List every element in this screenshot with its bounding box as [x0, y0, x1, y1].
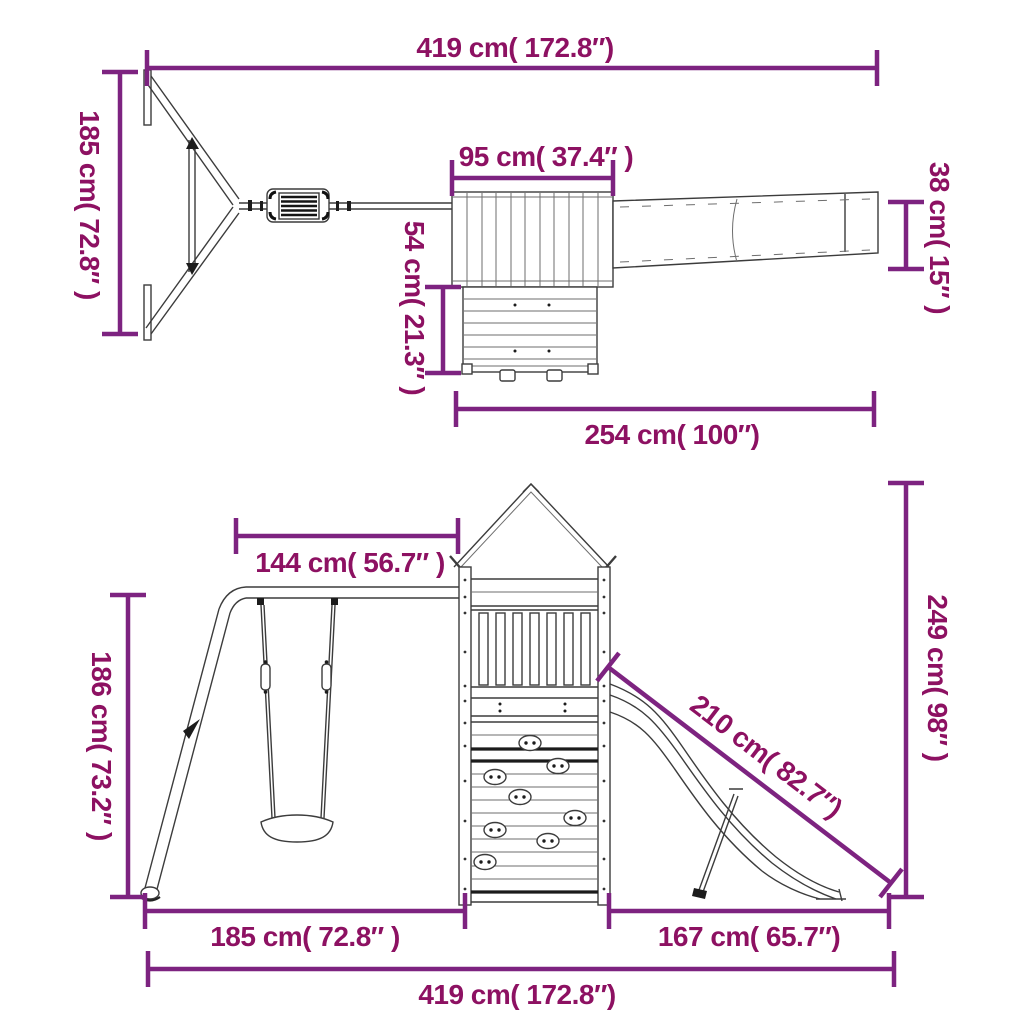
dim-side-slide-span: 167 cm( 65.7″): [609, 893, 889, 952]
dim-side-slide-length-label: 210 cm( 82.7″): [684, 689, 848, 824]
dim-side-total-width: 419 cm( 172.8″): [148, 951, 894, 1010]
dim-top-slide-width: 38 cm( 15″ ): [888, 162, 955, 314]
dim-side-tower-height-label: 249 cm( 98″ ): [922, 594, 953, 761]
slide-top-view: [613, 192, 878, 268]
tower-side-view: [450, 484, 616, 905]
swing-seat-top-view: [267, 189, 329, 222]
playset-dimensions-diagram: 419 cm( 172.8″) 185 cm( 72.8″ ) 95 cm( 3…: [0, 0, 1024, 1024]
playhouse-roof-top-view: [452, 192, 613, 287]
dim-side-swing-span: 185 cm( 72.8″ ): [145, 893, 465, 952]
dim-side-tower-height: 249 cm( 98″ ): [888, 483, 953, 897]
swing-seat-side-view: [261, 605, 335, 842]
top-view: 419 cm( 172.8″) 185 cm( 72.8″ ) 95 cm( 3…: [74, 32, 955, 450]
dim-side-beam-length: 144 cm( 56.7″ ): [236, 518, 458, 578]
dim-top-tower-slide-length: 254 cm( 100″): [456, 391, 874, 450]
dim-top-roof-width: 95 cm( 37.4″ ): [452, 141, 633, 196]
swing-frame-side-view: [140, 587, 460, 901]
swing-frame-top-view: [144, 70, 239, 340]
climbing-holds: [474, 736, 586, 870]
dim-side-beam-length-label: 144 cm( 56.7″ ): [255, 547, 445, 578]
dim-top-roof-depth-label: 54 cm( 21.3″ ): [399, 221, 430, 396]
dim-side-slide-span-label: 167 cm( 65.7″): [658, 921, 840, 952]
dim-top-swing-depth: 185 cm( 72.8″ ): [74, 72, 138, 334]
dim-top-total-width-label: 419 cm( 172.8″): [416, 32, 613, 63]
dim-top-tower-slide-length-label: 254 cm( 100″): [584, 419, 759, 450]
dim-top-swing-depth-label: 185 cm( 72.8″ ): [74, 110, 105, 300]
dim-top-roof-width-label: 95 cm( 37.4″ ): [459, 141, 634, 172]
playhouse-platform-top-view: [462, 287, 598, 381]
dim-side-total-width-label: 419 cm( 172.8″): [418, 979, 615, 1010]
diagram-canvas: 419 cm( 172.8″) 185 cm( 72.8″ ) 95 cm( 3…: [0, 0, 1024, 1024]
dim-side-swing-height-label: 186 cm( 73.2″ ): [86, 651, 117, 841]
side-view: 144 cm( 56.7″ ) 186 cm( 73.2″ ) 249 cm( …: [86, 483, 953, 1010]
dim-side-swing-span-label: 185 cm( 72.8″ ): [210, 921, 400, 952]
dim-side-swing-height: 186 cm( 73.2″ ): [86, 595, 146, 897]
dim-top-slide-width-label: 38 cm( 15″ ): [924, 162, 955, 314]
dim-top-total-width: 419 cm( 172.8″): [147, 32, 877, 86]
